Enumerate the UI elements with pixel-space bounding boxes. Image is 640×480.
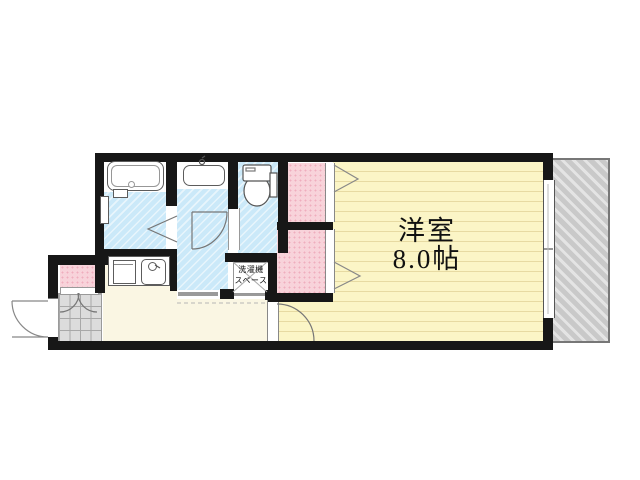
laundry-line1: 洗濯機 (231, 265, 271, 276)
annotations-svg (0, 0, 640, 480)
main-room-name: 洋室 (347, 217, 507, 245)
toilet-side-unit (270, 173, 277, 197)
washroom-door-arc (192, 212, 227, 249)
front-door-arc (12, 301, 48, 337)
main-room-door-arc (277, 304, 314, 341)
toilet-flush-handle (246, 168, 255, 171)
sink-spout (155, 265, 160, 268)
main-room-size: 8.0帖 (347, 245, 507, 273)
main-room-label: 洋室 8.0帖 (347, 217, 507, 273)
bath-door-triangle (148, 216, 177, 242)
basin-faucet-handle (202, 156, 205, 158)
laundry-line2: スペース (231, 276, 271, 287)
floor-plan: 洋室 8.0帖 洗濯機 スペース (0, 0, 640, 480)
toilet-tank-icon (243, 165, 271, 181)
laundry-space-label: 洗濯機 スペース (231, 265, 271, 286)
shoe-cabinet-door-arcs (60, 293, 97, 312)
basin-faucet-icon (200, 160, 205, 165)
closet-upper-door-triangle (334, 165, 358, 192)
